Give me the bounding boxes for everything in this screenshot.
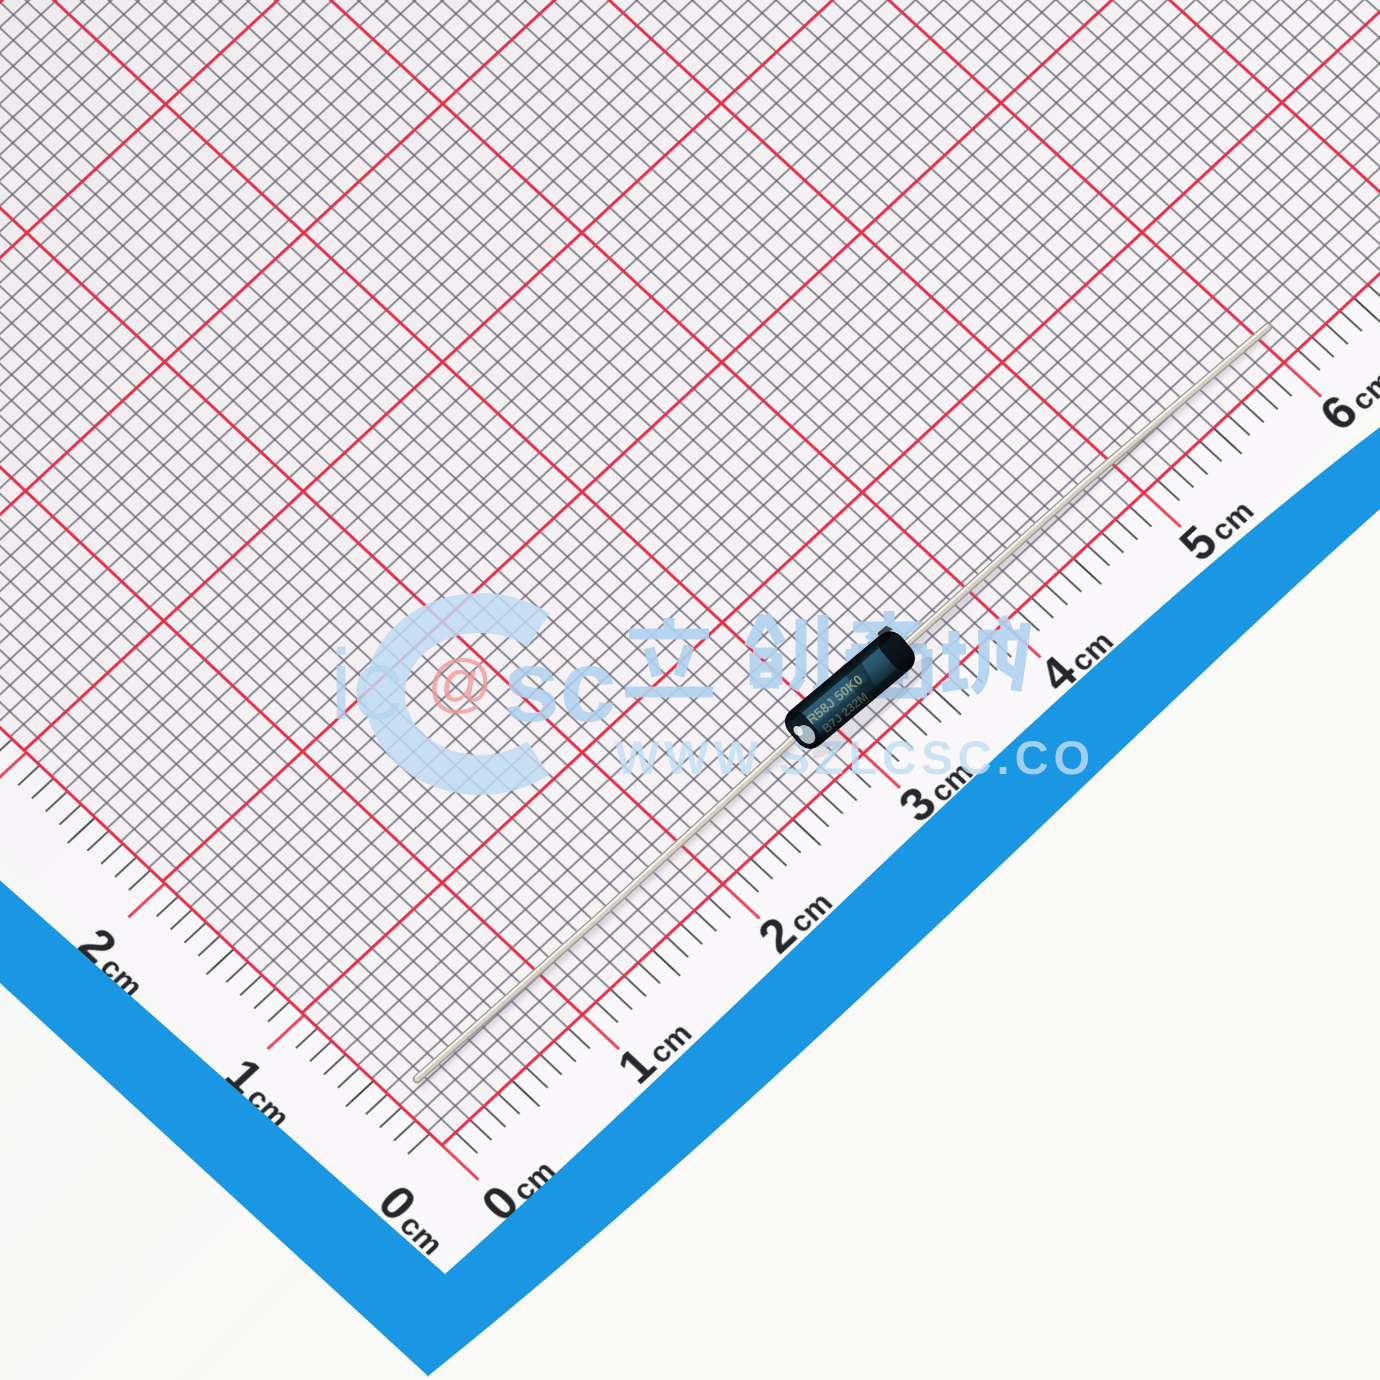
svg-text:@: @	[427, 646, 493, 719]
svg-text:sc: sc	[503, 629, 616, 743]
svg-text:ic: ic	[330, 629, 402, 741]
svg-text:WWW.SZLCSC.CO: WWW.SZLCSC.CO	[615, 731, 1095, 784]
